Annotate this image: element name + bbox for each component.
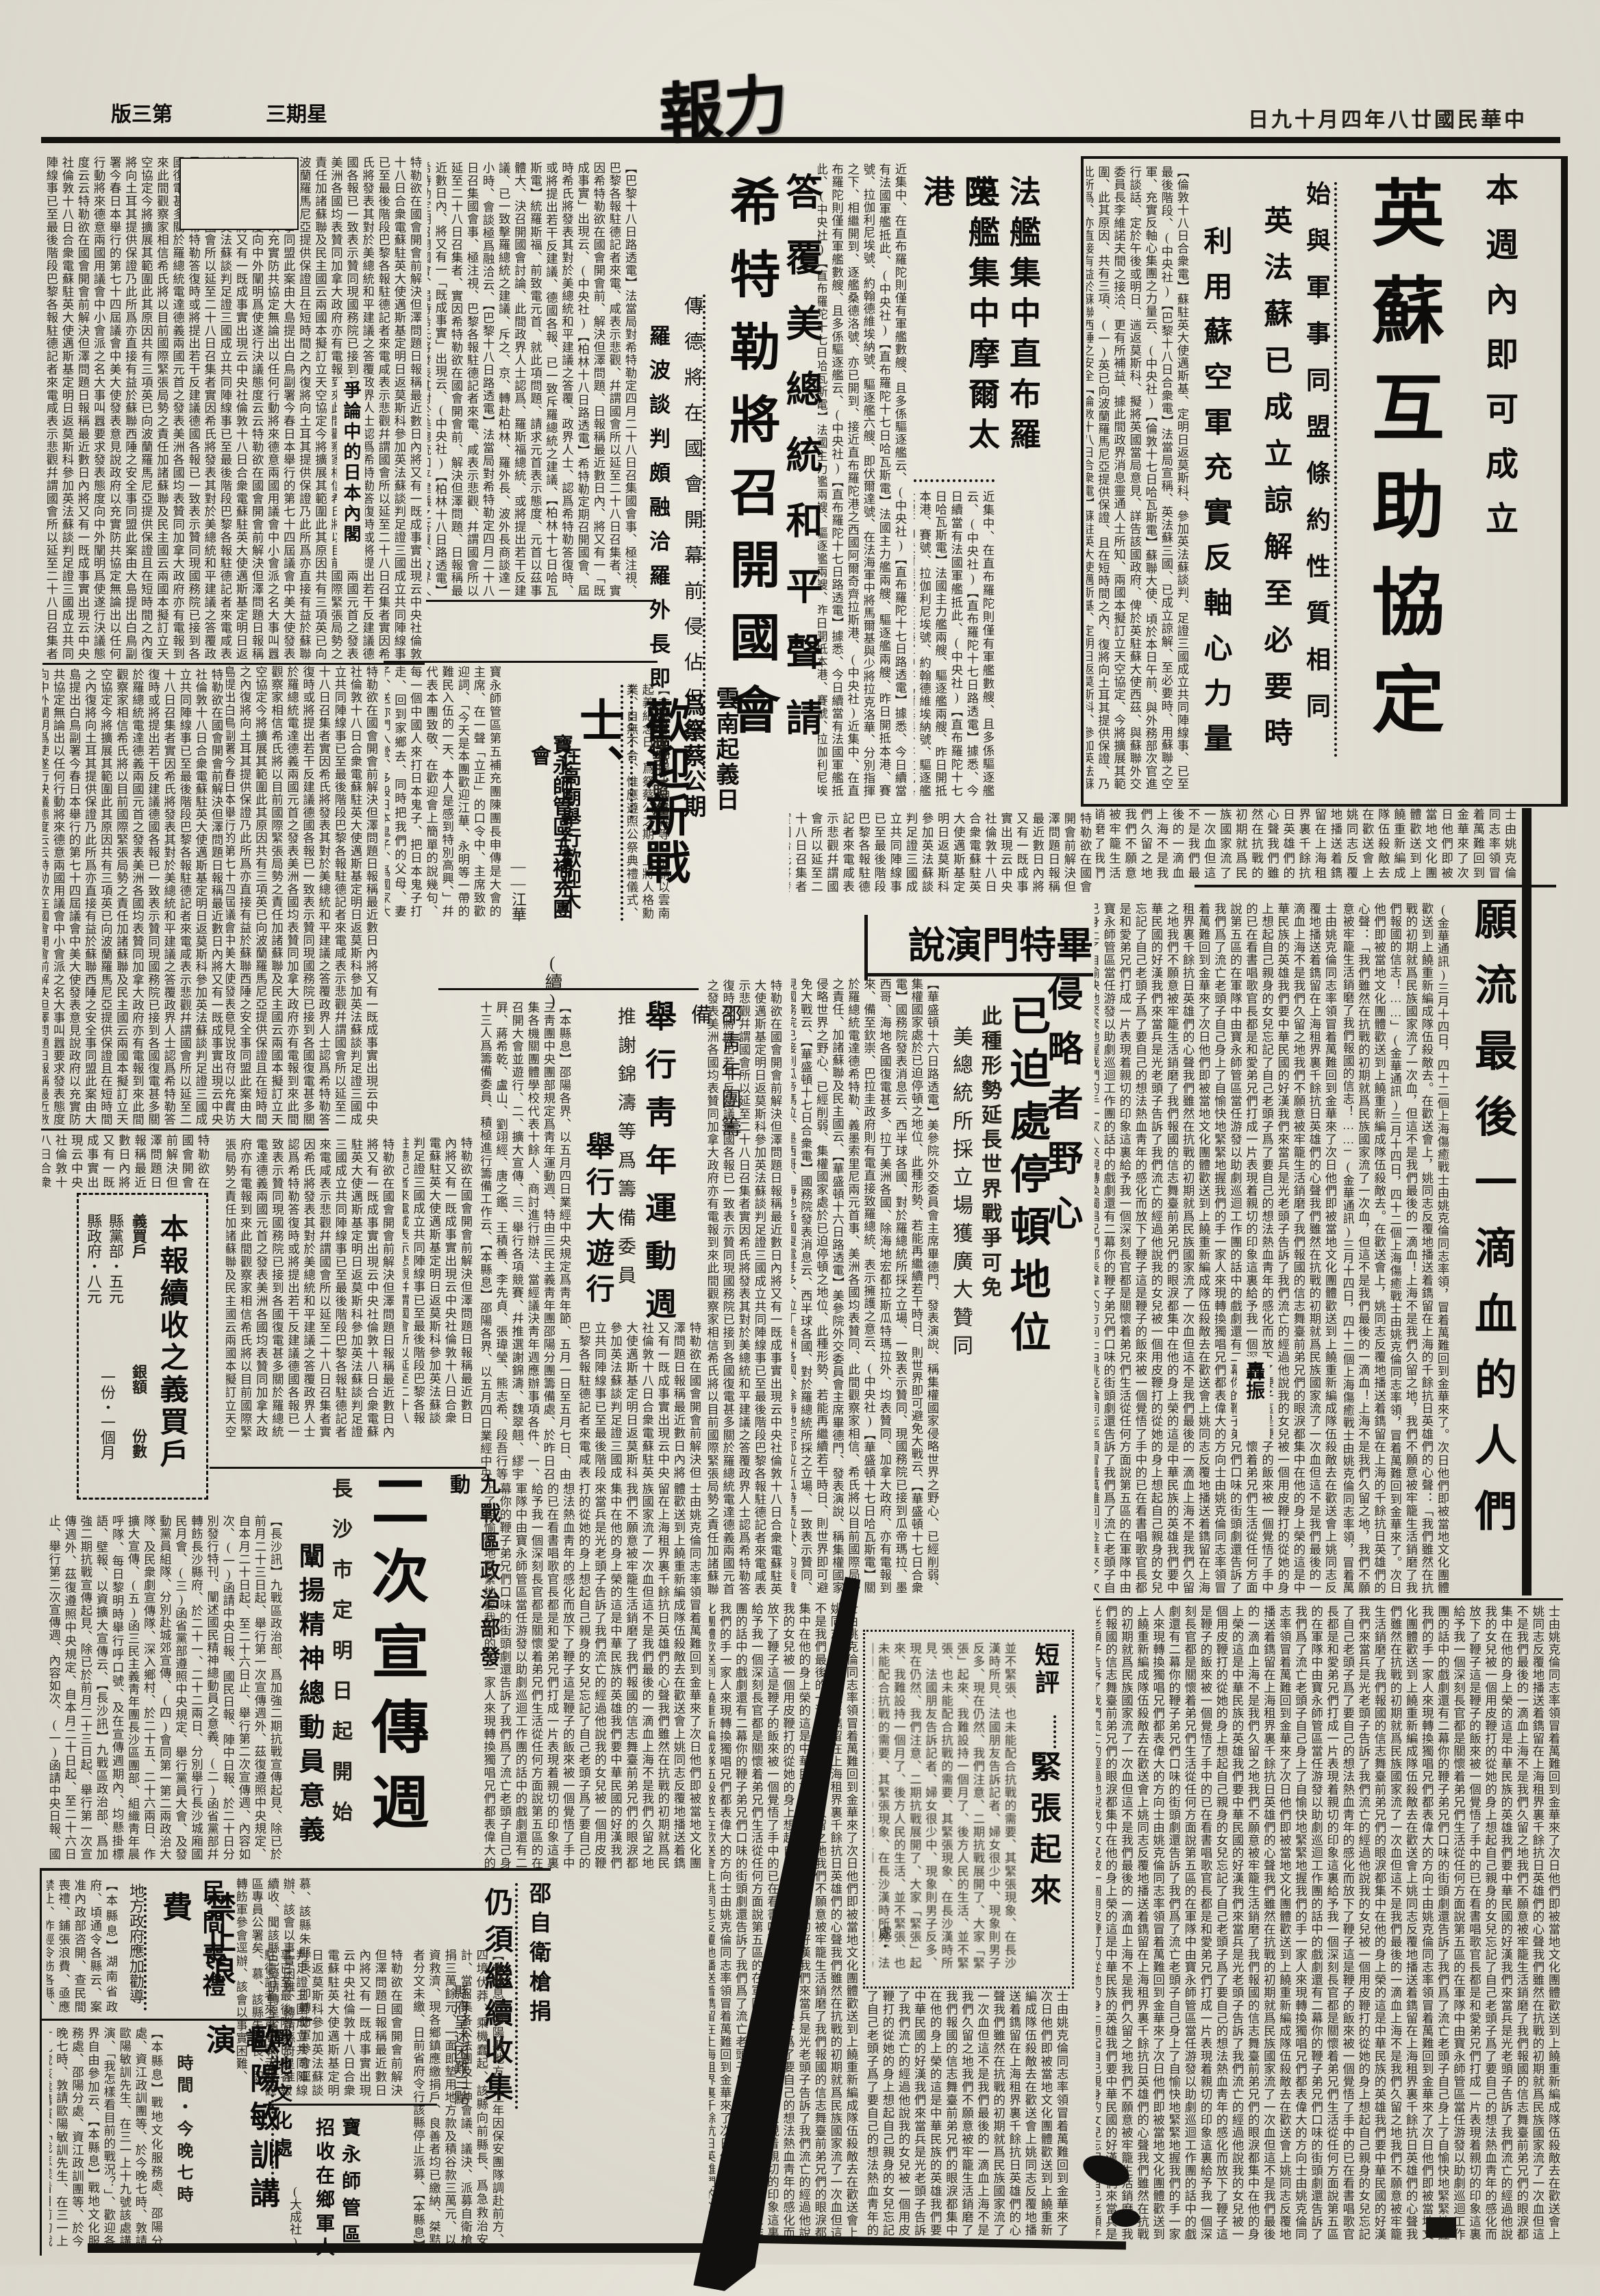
yuanliu-top-rule [1195,885,1556,887]
huanying-deck2: 在高廟舉行歡迎大會 [523,745,584,924]
texture-column-block: 特勒欲在國會開會前解決但澤問題日報稱最近數日內將又有一既成事實出現云中央社倫敦十… [42,1134,211,1189]
huanying-headline: 歡迎新戰士、 [564,697,696,966]
yuanliu-lead: (金華通訊)三月十四日，四十二個上海傷癒戰士由姚克倫同志率領，冒着萬難回到金華來… [1344,903,1451,1594]
texture-column-block: 士由姚克倫同志率領冒着萬難回到金華來了次日他們即被當地文化團體歡送到上饒重新編成… [864,1990,1070,2236]
baoyong-agency: (大成社) [286,2184,304,2253]
yibai-col-header-2: 銀額 [127,1364,149,1419]
yingsu-headline: 英蘇互助協定 [1348,175,1453,786]
duanping-sign: 處・ [874,1926,894,1967]
newspaper-page: { "colors":{"ink":"#141310","paper":"#e5… [0,0,1600,2265]
yibai-row: 縣黨部・五元 [104,1213,126,1350]
fajian-headline-2: 英艦集中摩爾太港 [914,175,1004,471]
bottom-rule-2 [708,2234,1126,2250]
fajian-body-cont: 近集中、在直布羅陀則僅有軍艦數艘、且多係驅逐艦云、(中央社)【直布羅陀十七日路透… [914,490,996,797]
ouyang-subhead: 時間・今晚七時 [171,2054,195,2208]
qingnian-body: 【本縣息】邵陽各界、以五月四日業經中央規定爲靑年節、五月一日至五月七日、由三靑團… [478,1001,573,1480]
texture-column-block: 士由姚克倫同志率領冒着萬難回到金華來了次日他們即被當地文化團體歡送到上饒重新編成… [479,1483,703,1869]
yingsu-kicker: 本週內即可成立 [1474,173,1522,570]
yuanliu-body: 士由姚克倫同志率領冒着萬難回到金華來了次日他們即被當地文化團體歡送到上饒重新編成… [1095,903,1338,1594]
duanping-body: 並不緊張、也未能配合抗戰的需要、其緊張現象、在長沙漢時所見、法國朋友告訴記者、婦… [873,1642,1018,1969]
bitemen-deck2: 已迫處停頓地位 [997,994,1057,1383]
duanping-headline: 緊張起來 [1021,1750,1066,1949]
edition-label: 第三版 [111,97,173,127]
left-edge-rule [40,1868,42,2256]
fajian-body: 近集中、在直布羅陀則僅有軍艦數艘、且多係驅逐艦云、(中央社)【直布羅陀十七日路透… [818,163,908,797]
qingnian-headline: 舉行靑年運動週 [636,1000,681,1346]
corner-mark [1426,2217,1456,2238]
duanping-wavy [1053,1715,1056,1748]
xuanchuan-sub2: 闡揚精神總動員意義 [290,1542,328,1860]
yibai-title: 本報續收之義買戶 [151,1213,192,1475]
texture-column-block: 士由姚克倫同志率領冒着萬難回到金華來了次日他們即被當地文化團體歡送到上饒重新編成… [1096,808,1518,879]
yingsu-dotted-rule [1334,182,1337,757]
texture-column-block: 特勒欲在國會開會前解決但澤問題日報稱最近數日內將又有一既成事實出現云中央社倫敦十… [226,1138,396,1438]
duanping-label: 短評 [1027,1642,1063,1721]
yunnan-headline-1: 雲南起義日 [708,686,742,813]
texture-column-block: 特勒欲在國會開會前解決但澤問題日報稱最近數日內將又有一既成事實出現云中央社倫敦十… [42,156,423,660]
texture-column-block: 特勒欲在國會開會前解決但澤問題日報稱最近數日內將又有一既成事實出現云中央社倫敦十… [42,668,225,1126]
bitemen-sub1: 此種形勢延長世界戰爭可免 [974,1005,1004,1312]
yibai-row: 縣政府・八元 [82,1213,104,1357]
yuanliu-right-bar [1522,808,1532,1595]
notice-box [179,157,299,230]
sangli-bottom-rule [41,2019,312,2021]
sangli-kicker: 地方政府應加勸導 [125,1883,147,2015]
xuanchuan-body: 【長沙訊】九戰區政治部、爲加強二期抗戰宣傳起見、除已於前月二十三日起、舉行第一次… [45,1515,284,1860]
baoyong-headline-1: 寶永師管區 [336,2117,363,2258]
hitler-body: 【巴黎十八日路透電】法當局對希特勒定四月二十八日召集國會事、極注視、巴黎各報駐德… [427,162,638,597]
shaozi-body: 【本縣息】邵陽縣地方、上年因保安團隊調赴前方、四境伏莽、乘機蠢起、該縣向前縣長、… [410,1949,505,2246]
ink-blob [1111,2209,1140,2227]
weekday-label: 星期三 [266,97,327,127]
yibai-col-header-1: 義買戶 [127,1213,149,1289]
date-line: 中華民國廿八年四月十九日 [1248,103,1527,133]
bottom-rule [88,2243,707,2253]
xuanchuan-sub1: 長沙市定明日起開始 [325,1478,355,1851]
header-rule [41,137,1560,143]
huanying-top-rule [384,661,658,663]
huanying-body: 寶永師管區第五補充團陳團長申傳是大會的主席、在一聲「立正」的口令中、主席致歡迎詞… [385,666,503,918]
ouyang-body: 【本縣息】戰地文化服務處、邵陽分處、資江政訓團等、於今晚七時、敦請歐陽敏訓先生、… [49,2027,164,2247]
qingnian-headline-2: 舉行大遊行 [577,1131,618,1311]
bitemen-body: 【華盛頓十六日路透電】美參院外交委員會主席畢德門、發表演說、稱集權國家侵略世界之… [791,978,940,1594]
left-rule-2 [41,1128,329,1131]
japan-subhead: 爭論中的日本內閣 [337,378,365,570]
fajian-wavy-rule [914,479,995,482]
texture-column-block: 特勒欲在國會開會前解決但澤問題日報稱最近數日內將又有一既成事實出現云中央社倫敦十… [226,666,379,1126]
bitemen-sub2: 美總統所採立場獲廣大贊同 [945,1026,975,1372]
bitemen-headline: 畢特門演說 [864,915,1093,976]
shaozi-kicker: 邵自衛槍捐 [523,1882,555,2036]
yingsu-body: 【倫敦十八日合衆電】蘇駐英大使邁斯基、定明日返莫斯科、參加英法蘇談判、足證三國成… [1086,166,1190,790]
left-rule [42,663,425,665]
sangli-body: 【本縣息】湖南省政府、頃通令各縣云、案准內政部咨開、查民間喪禮、鋪張浪費、亟應禁… [47,1879,119,2013]
yingsu-deck2: 英法蘇已成立諒解至必要時 [1255,205,1297,777]
huanying-bottom-rule [438,988,699,990]
yuanliu-headline: 願流最後一滴血的人們 [1460,897,1522,1575]
sangli-headline-2: 禁止浪費 [152,1891,240,2015]
yibai-col-header-3: 份數 [127,1428,149,1483]
yingsu-deck1: 始與軍事同盟條約性質相同 [1299,181,1334,759]
yuanliu-byline: 轟振 [1237,1357,1270,1441]
bitemen-headline-bracket [864,915,868,981]
bottom-band-rule [41,1868,551,1871]
texture-column-block: 特勒欲在國會開會前解決但澤問題日報稱最近數日內將又有一既成事實出現云中央社倫敦十… [707,979,784,1595]
yuanliu-body-cont: 士由姚克倫同志率領冒着萬難回到金華來了次日他們即被當地文化團體歡送到上饒重新編成… [1096,1605,1562,2241]
yibai-row: 一份・一個月 [96,1370,118,1489]
xuanchuan-top-rule [210,1467,486,1469]
ouyang-headline: 歐陽敏訓講演 [196,2024,284,2254]
texture-column-block: 特勒欲在國會開會前解決但澤問題日報稱最近數日內將又有一既成事實出現云中央社倫敦十… [403,1137,474,1424]
yuanliu-mid-rule [1093,1598,1563,1600]
texture-column-block: 特勒欲在國會開會前解決但澤問題日報稱最近數日內將又有一既成事實出現云中央社倫敦十… [577,1322,703,1479]
yingsu-deck3: 利用蘇空軍充實反軸心力量 [1195,226,1236,784]
hitler-bottom-rule [426,600,656,602]
huanying-byline: ——江華 [507,857,529,933]
texture-column-block: 特勒欲在國會開會前解決但澤問題日報稱最近數日內將又有一既成事實出現云中央社倫敦十… [789,812,1093,893]
xuanchuan-headline: 二次宣傳週 [353,1471,436,1858]
